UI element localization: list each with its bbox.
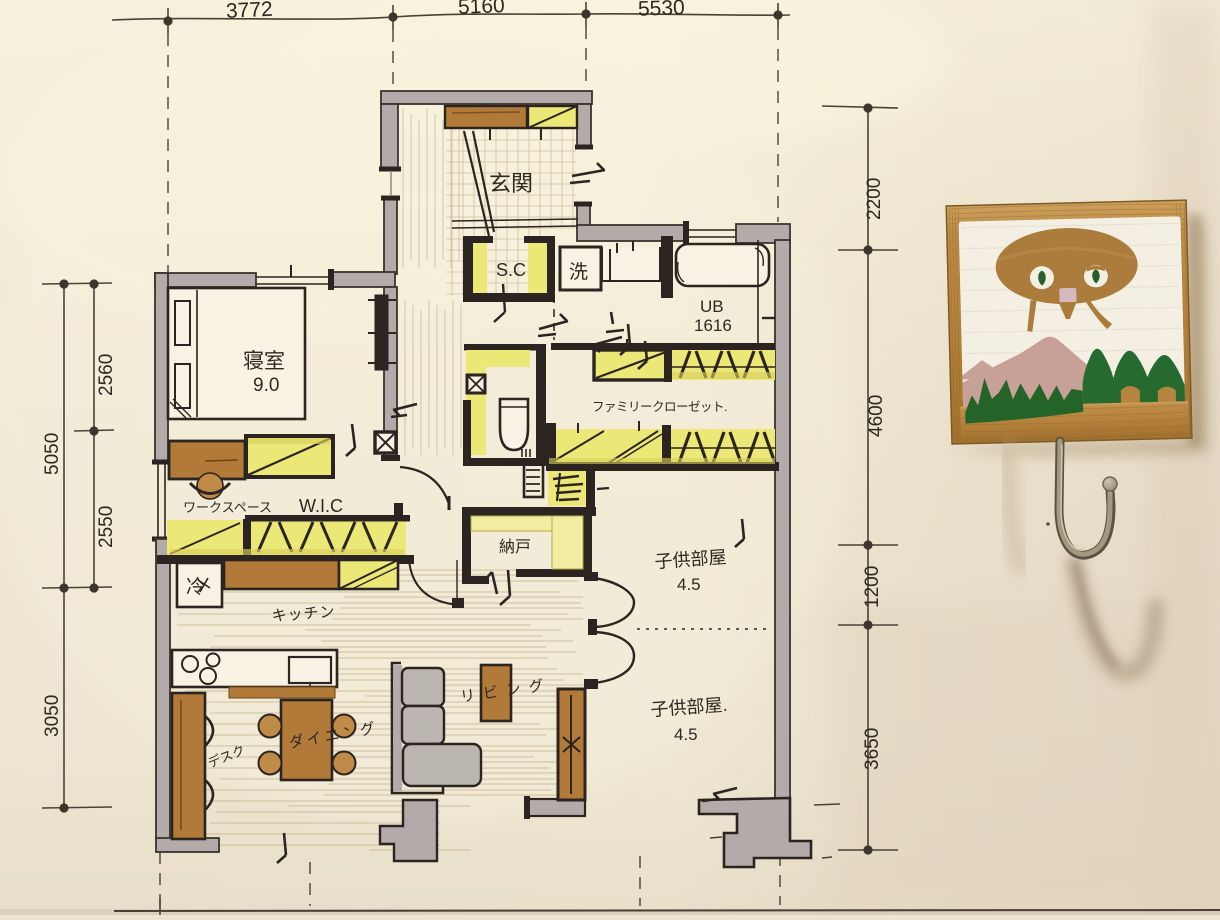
- svg-text:2200: 2200: [864, 178, 885, 220]
- svg-text:納戸: 納戸: [499, 538, 531, 556]
- svg-text:W.I.C: W.I.C: [299, 496, 343, 516]
- svg-text:寝室: 寝室: [243, 350, 285, 373]
- svg-text:3772: 3772: [225, 0, 273, 23]
- svg-text:UB: UB: [700, 297, 724, 316]
- svg-text:4.5: 4.5: [677, 575, 701, 594]
- svg-text:1200: 1200: [862, 566, 883, 608]
- svg-text:2560: 2560: [96, 354, 117, 396]
- svg-text:4.5: 4.5: [674, 725, 698, 744]
- svg-text:ファミリークローゼット.: ファミリークローゼット.: [592, 400, 727, 414]
- svg-text:玄関: 玄関: [489, 171, 533, 196]
- svg-text:5530: 5530: [638, 0, 685, 21]
- svg-text:1616: 1616: [694, 316, 732, 335]
- svg-text:S.C: S.C: [496, 260, 526, 280]
- svg-text:5050: 5050: [42, 433, 63, 475]
- svg-text:3050: 3050: [42, 695, 63, 737]
- svg-text:洗: 洗: [569, 261, 588, 283]
- svg-text:2550: 2550: [96, 506, 117, 548]
- svg-text:4600: 4600: [866, 395, 887, 437]
- svg-text:ワークスペース: ワークスペース: [183, 500, 272, 515]
- svg-text:9.0: 9.0: [253, 375, 279, 396]
- svg-text:3650: 3650: [862, 728, 883, 770]
- svg-text:5160: 5160: [458, 0, 505, 19]
